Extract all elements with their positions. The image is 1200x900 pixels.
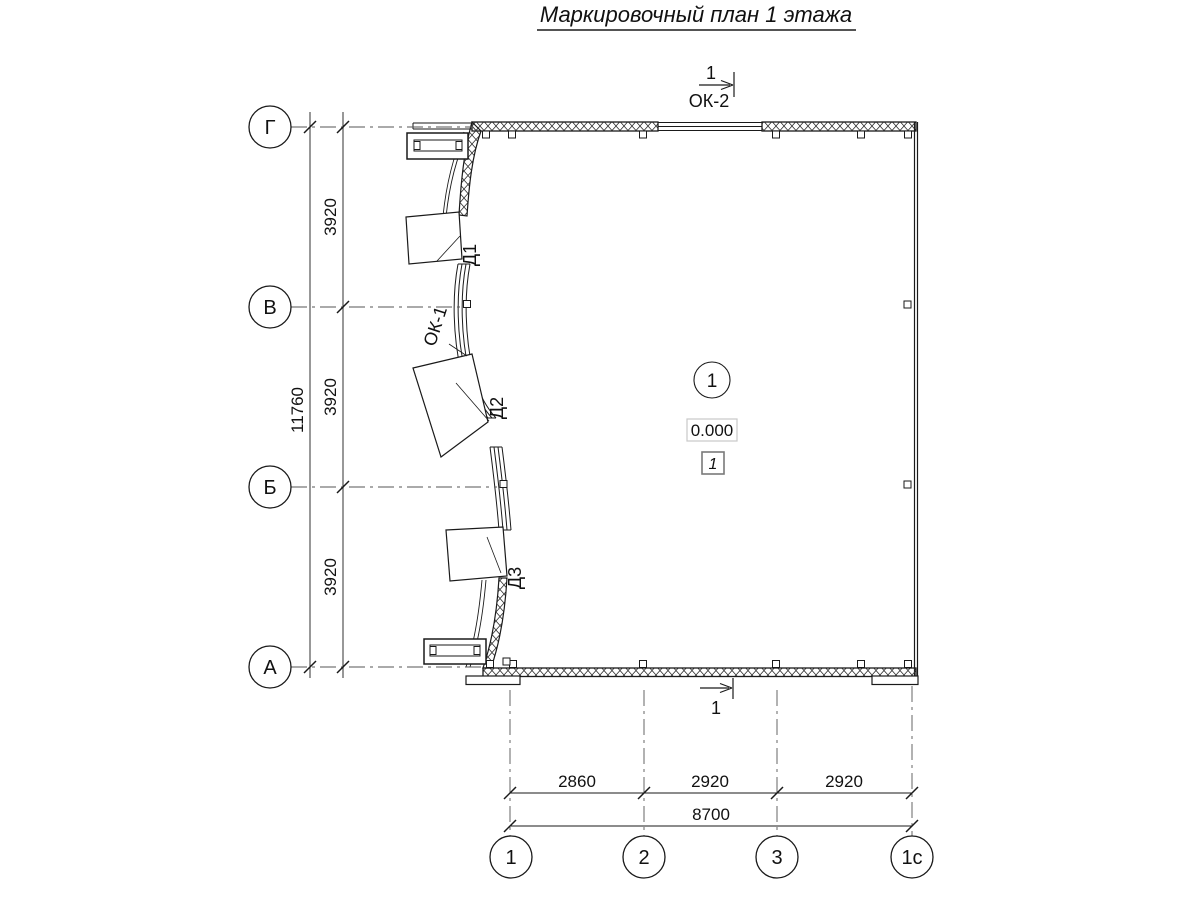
dim-value: 2860 xyxy=(558,772,596,791)
room-number-label: 1 xyxy=(707,371,718,392)
axis-label-3: 3 xyxy=(771,847,782,869)
section-mark-top: 1 ОК-2 xyxy=(689,63,734,111)
dim-total-value: 11760 xyxy=(288,387,307,433)
dim-value: 2920 xyxy=(825,772,863,791)
door-d2-porch xyxy=(413,354,488,457)
axis-lines xyxy=(291,127,912,836)
footing-left xyxy=(466,676,520,685)
footing-right xyxy=(872,676,918,685)
doors xyxy=(406,212,507,581)
floor-plan-drawing: Маркировочный план 1 этажа 1 ОК-2 1 xyxy=(0,0,1200,900)
bottom-dimensions: 2860 2920 2920 8700 xyxy=(504,772,918,832)
axis-label-g: Г xyxy=(265,117,276,139)
page-title: Маркировочный план 1 этажа xyxy=(540,2,852,27)
right-wall xyxy=(915,122,918,676)
bottom-wall xyxy=(483,668,916,677)
plan-canvas: Маркировочный план 1 этажа 1 ОК-2 1 xyxy=(0,0,1200,900)
row-axis-bubbles: Г В Б А xyxy=(249,106,291,688)
door-d1-label: Д1 xyxy=(460,244,480,266)
window-ok2-label: ОК-2 xyxy=(689,91,730,111)
door-d1-porch xyxy=(406,212,462,264)
dim-value: 2920 xyxy=(691,772,729,791)
left-dimensions: 3920 3920 3920 11760 xyxy=(288,112,349,678)
dim-total-value: 8700 xyxy=(692,805,730,824)
room-marks: 1 0.000 1 xyxy=(687,362,737,474)
top-wall-right xyxy=(762,122,916,131)
elevation-label: 0.000 xyxy=(691,421,734,440)
wall-ties xyxy=(464,131,912,668)
col-axis-bubbles: 1 2 3 1с xyxy=(490,836,933,878)
dim-value: 3920 xyxy=(321,378,340,416)
axis-label-1c: 1с xyxy=(901,847,922,869)
axis-label-v: В xyxy=(263,297,276,319)
window-ok1-label: ОК-1 xyxy=(420,304,452,349)
drawing-title: Маркировочный план 1 этажа xyxy=(537,2,856,30)
door-d3-label: Д3 xyxy=(505,567,525,589)
section-mark-bottom: 1 xyxy=(700,678,733,718)
top-wall-left xyxy=(472,122,658,131)
window-ok2 xyxy=(658,123,762,131)
dim-value: 3920 xyxy=(321,558,340,596)
door-d3-porch xyxy=(446,527,507,581)
window-ok1-lower xyxy=(490,447,511,530)
axis-label-b: Б xyxy=(263,477,276,499)
axis-label-a: А xyxy=(263,657,277,679)
axis-label-2: 2 xyxy=(638,847,649,869)
room-tag-label: 1 xyxy=(709,456,718,473)
axis-label-1: 1 xyxy=(505,847,516,869)
section-number-label: 1 xyxy=(711,698,721,718)
section-number-label: 1 xyxy=(706,63,716,83)
top-left-face-lines xyxy=(413,123,472,129)
door-d2-label: Д2 xyxy=(487,397,507,419)
dim-value: 3920 xyxy=(321,198,340,236)
